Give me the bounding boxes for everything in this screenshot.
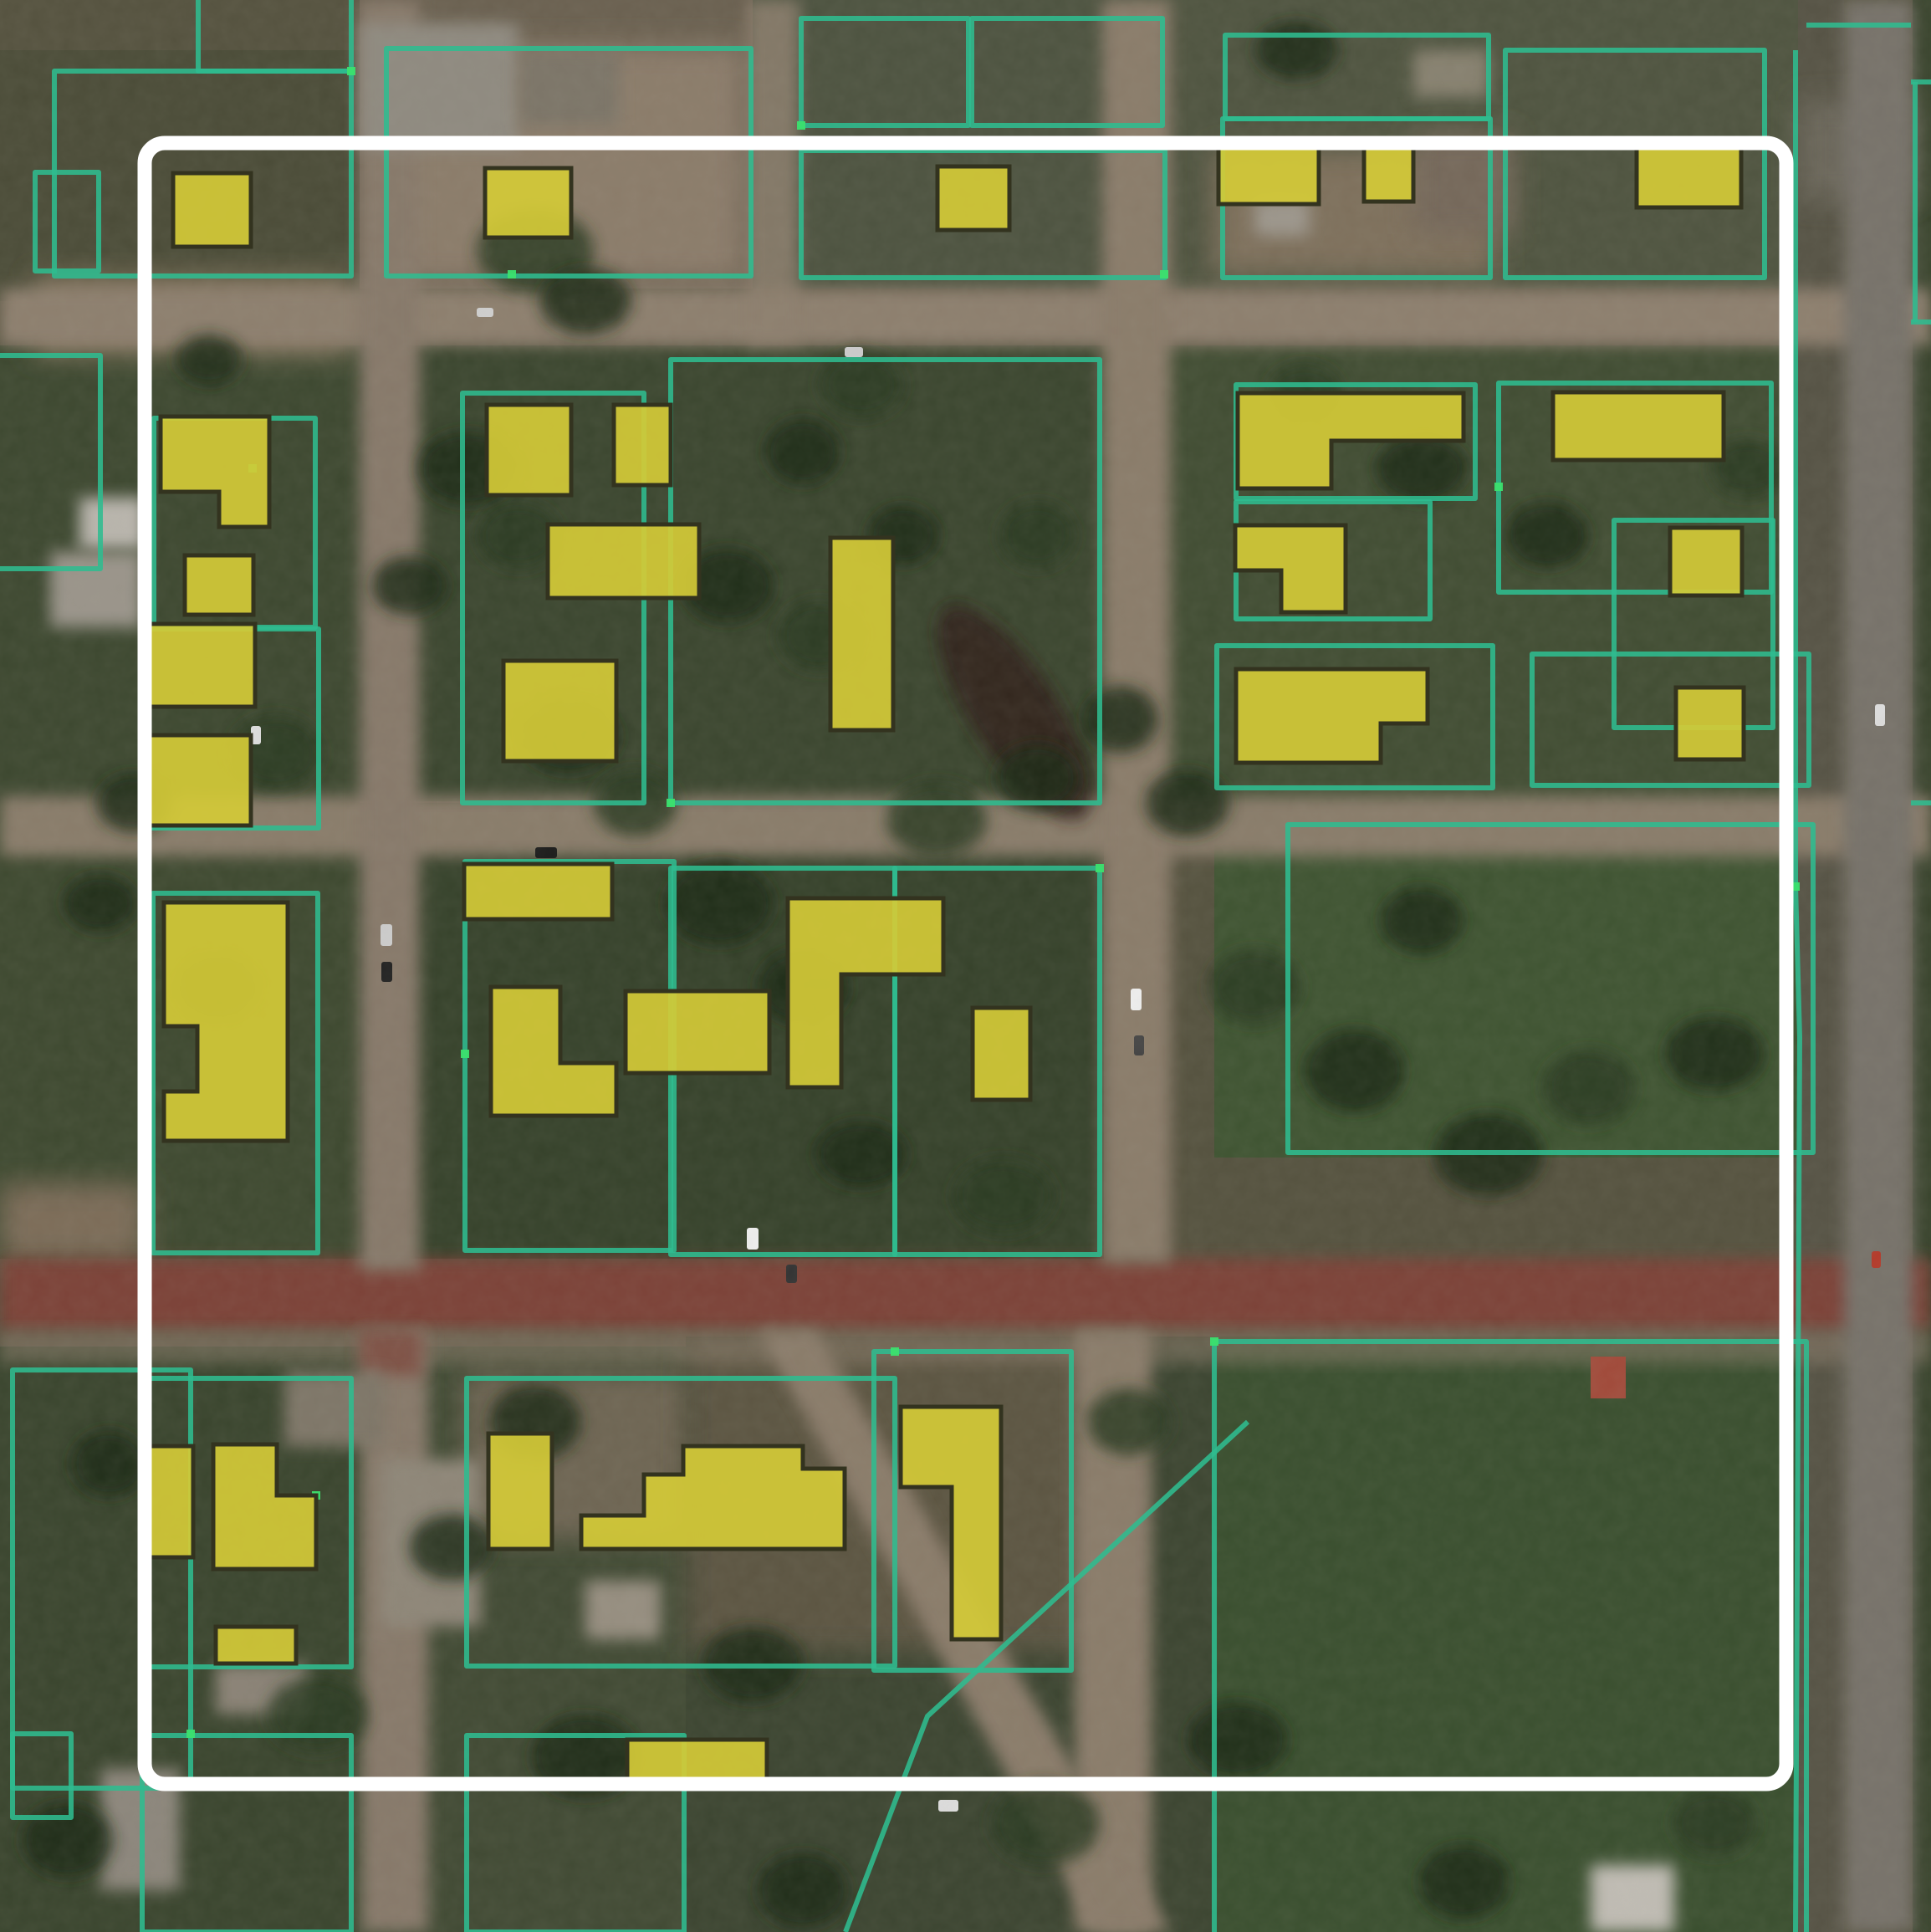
parcel-vertex-node xyxy=(667,799,675,807)
parcel-vertex-node xyxy=(186,1730,195,1738)
building-footprint-bldg-02 xyxy=(485,168,571,238)
building-footprint-bldg-09 xyxy=(548,524,699,598)
building-footprint-bldg-01 xyxy=(173,173,251,247)
aerial-annotation-canvas xyxy=(0,0,1931,1932)
building-footprint-bldg-05 xyxy=(144,624,255,707)
building-footprint-bldg-25 xyxy=(164,902,288,1141)
building-footprint-bldg-04 xyxy=(185,555,253,615)
parcel-vertex-node xyxy=(1160,270,1168,279)
building-footprint-bldg-12 xyxy=(1364,144,1413,202)
parcel-vertex-node xyxy=(1096,864,1104,872)
building-footprint-bldg-16 xyxy=(1670,528,1742,595)
parcel-vertex-node xyxy=(461,1050,469,1058)
building-footprint-bldg-07 xyxy=(487,405,571,495)
parcel-vertex-node xyxy=(797,121,805,130)
building-footprint-bldg-20 xyxy=(464,864,612,919)
building-footprint-bldg-06 xyxy=(144,735,251,825)
parcel-vertex-node xyxy=(1494,483,1503,491)
building-footprint-bldg-10 xyxy=(937,166,1009,230)
building-footprint-bldg-13 xyxy=(1637,144,1741,207)
building-footprint-bldg-23 xyxy=(973,1008,1030,1100)
building-footprint-bldg-08 xyxy=(614,405,671,485)
parcel-vertex-node xyxy=(891,1347,899,1356)
building-footprint-bldg-24 xyxy=(626,991,769,1073)
parcel-vertex-node xyxy=(508,270,516,279)
aerial-annotation-viewport xyxy=(0,0,1931,1932)
parcel-vertex-node xyxy=(347,67,355,75)
building-footprint-bldg-11 xyxy=(1218,144,1319,204)
parcel-vertex-node xyxy=(1210,1337,1218,1346)
building-footprint-bldg-15 xyxy=(1553,392,1724,460)
building-footprint-bldg-31 xyxy=(488,1434,552,1549)
building-footprint-bldg-27 xyxy=(1676,687,1744,759)
building-footprint-bldg-30 xyxy=(216,1627,296,1664)
building-footprint-bldg-19 xyxy=(503,661,616,761)
building-footprint-bldg-18 xyxy=(830,538,893,730)
